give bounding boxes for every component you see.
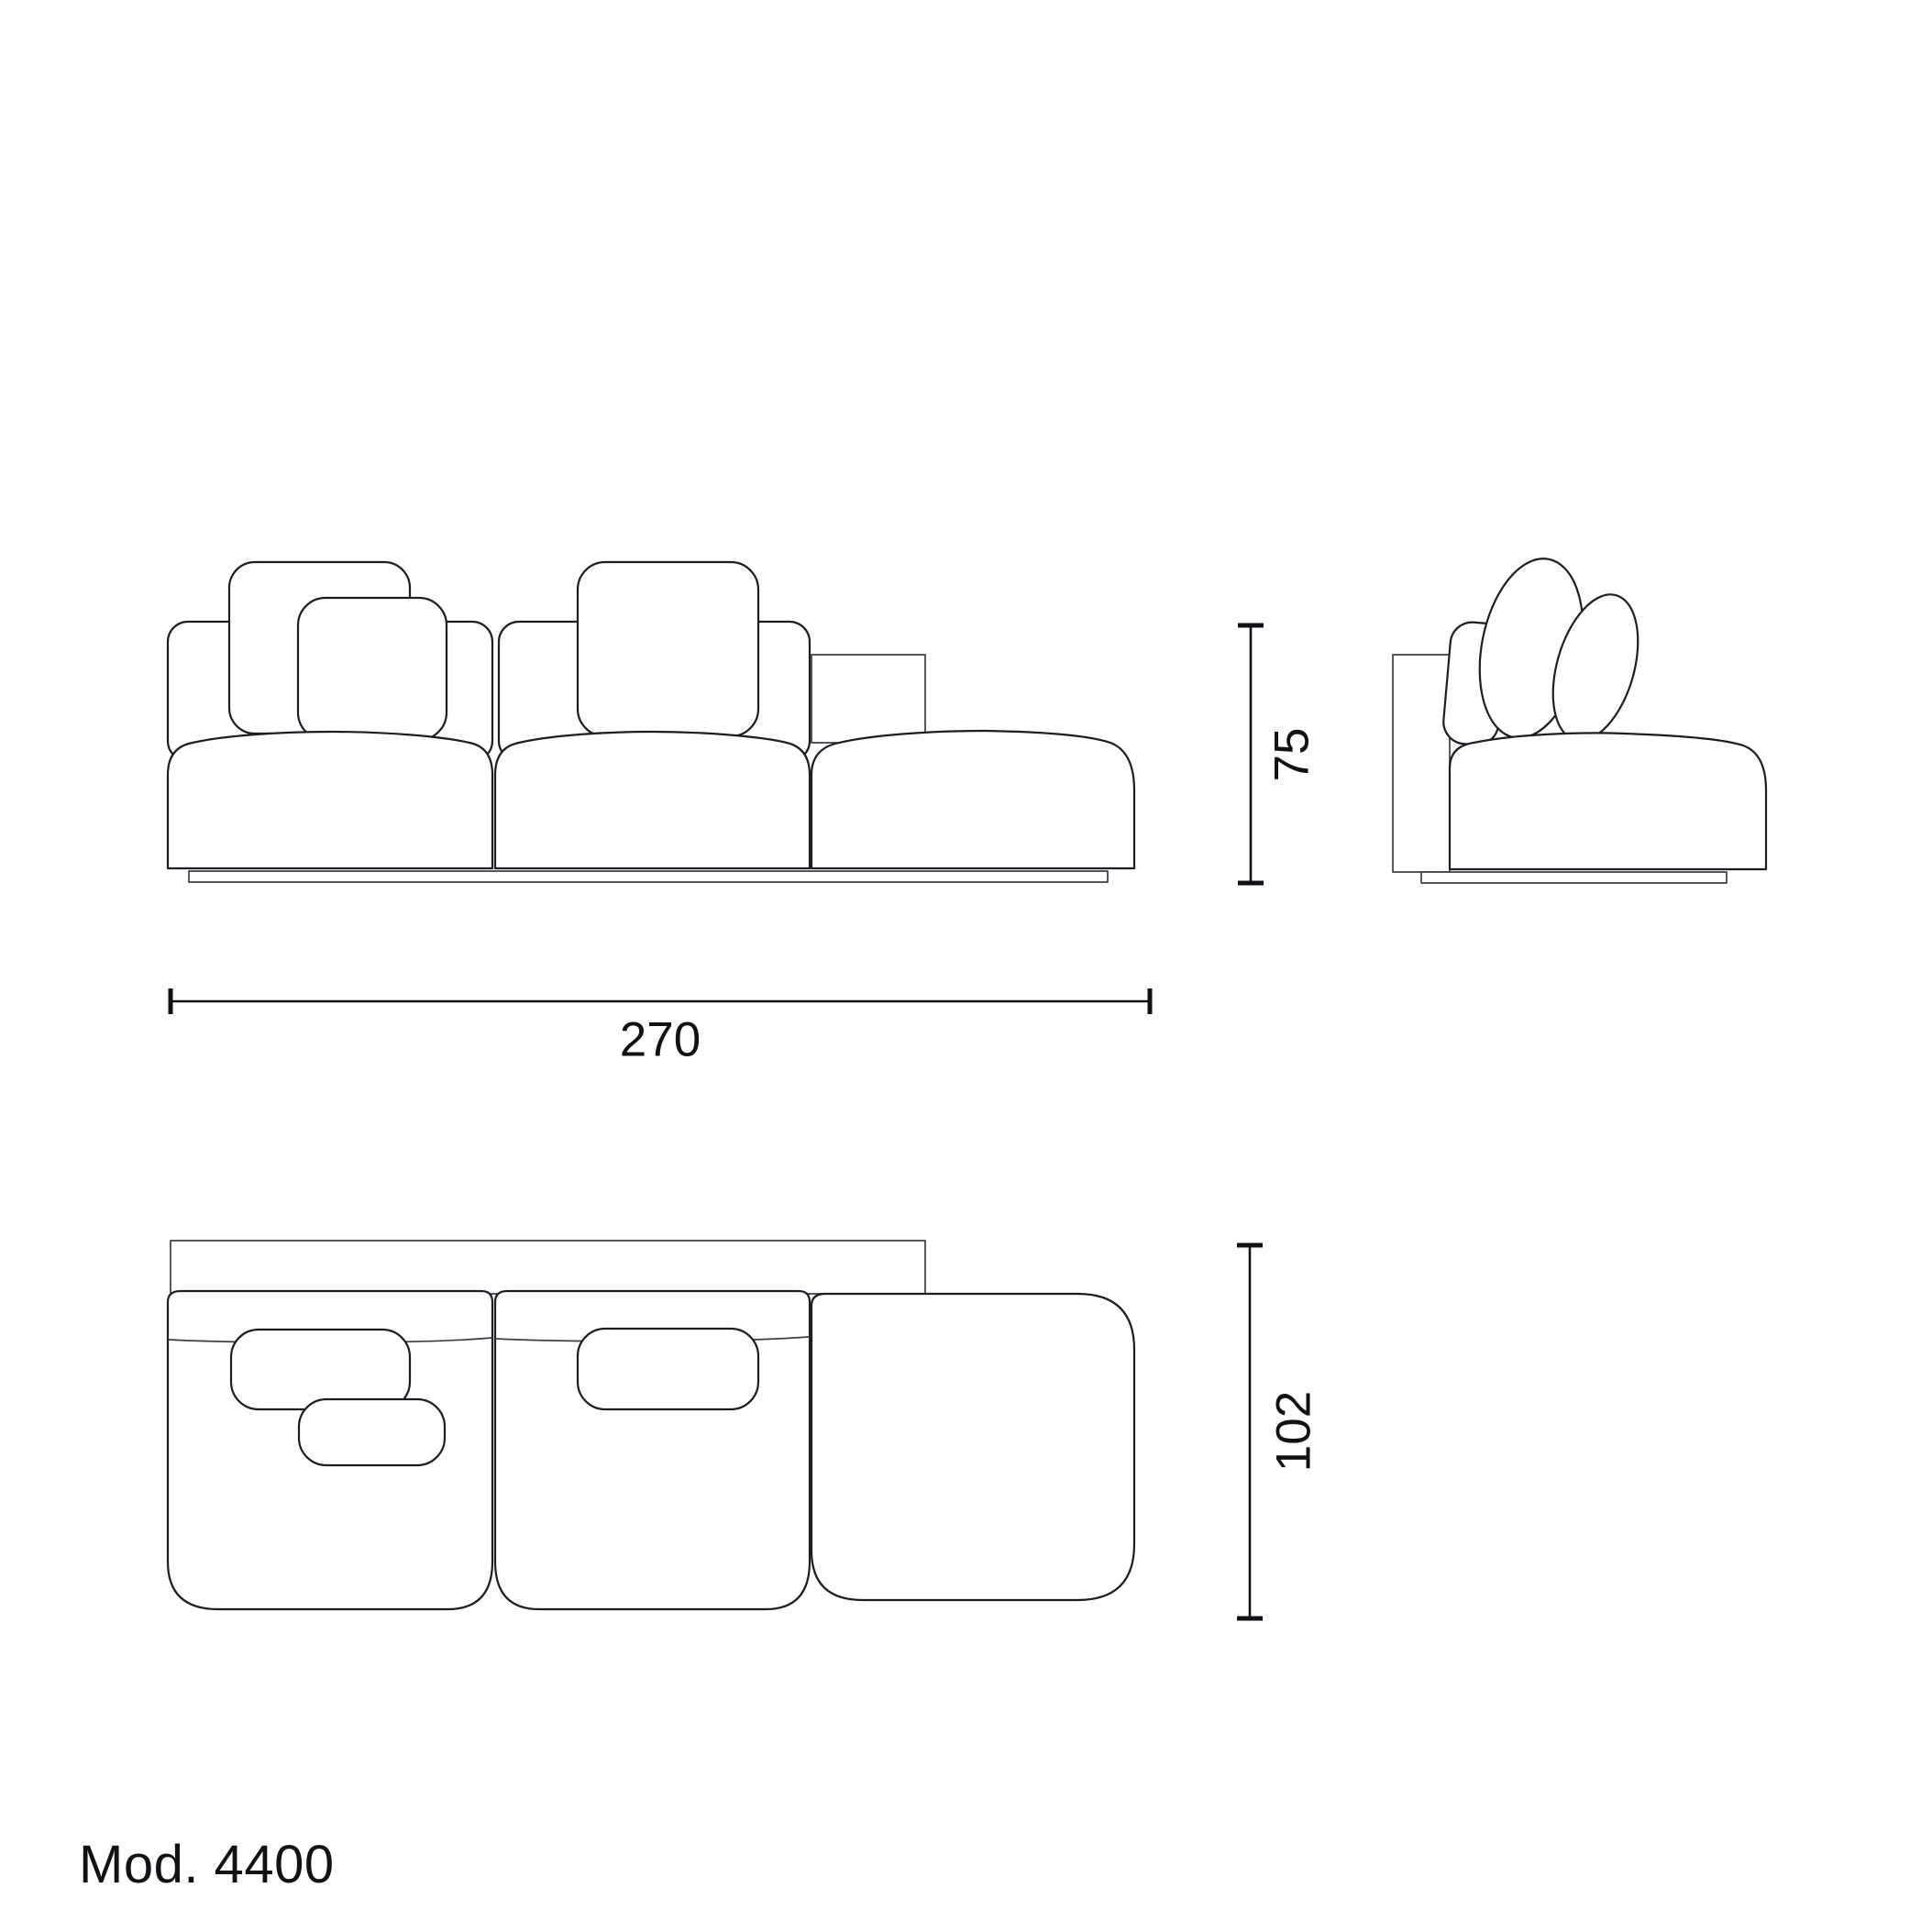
- dimension-depth: 102: [1237, 1245, 1321, 1618]
- front-seat-chaise: [811, 731, 1134, 868]
- front-seat-left: [168, 732, 492, 868]
- front-side-panel: [811, 655, 925, 743]
- dimension-depth-value: 102: [1267, 1391, 1321, 1472]
- sofa-technical-drawing: 270 75 102 Mod. 4400: [0, 0, 1932, 1932]
- top-plan-view: [168, 1241, 1134, 1609]
- dimension-height: 75: [1238, 625, 1319, 883]
- technical-drawing-sheet: 270 75 102 Mod. 4400: [0, 0, 1932, 1932]
- front-elevation-view: [168, 562, 1134, 882]
- front-plinth: [189, 871, 1108, 882]
- plan-module-chaise: [811, 1294, 1134, 1600]
- dimension-width: 270: [171, 988, 1150, 1067]
- side-back-panel: [1393, 655, 1450, 872]
- front-pillow-middle: [578, 562, 758, 736]
- dimension-height-value: 75: [1265, 728, 1319, 782]
- plan-pillow-middle: [578, 1329, 758, 1409]
- front-seat-middle: [495, 732, 810, 868]
- model-label: Mod. 4400: [79, 1835, 335, 1894]
- dimension-width-value: 270: [620, 1013, 701, 1067]
- side-seat: [1450, 733, 1766, 869]
- plan-back-panel: [171, 1241, 925, 1294]
- side-elevation-view: [1393, 550, 1766, 883]
- side-plinth: [1421, 872, 1727, 883]
- plan-pillow-left-front: [299, 1399, 445, 1465]
- front-pillow-left-front: [298, 598, 447, 740]
- plan-pillow-left-back: [231, 1330, 410, 1409]
